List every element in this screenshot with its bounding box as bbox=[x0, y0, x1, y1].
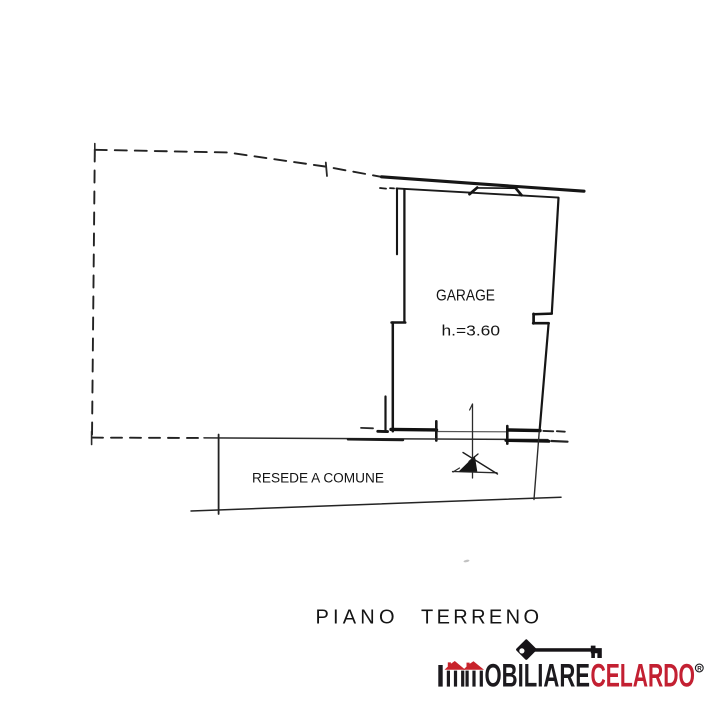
svg-text:CELARDO: CELARDO bbox=[591, 658, 696, 694]
svg-text:RESEDE A COMUNE: RESEDE A COMUNE bbox=[252, 471, 384, 486]
svg-text:R: R bbox=[697, 665, 702, 672]
svg-text:h.=3.60: h.=3.60 bbox=[442, 323, 501, 340]
svg-text:OBILIARE: OBILIARE bbox=[485, 658, 591, 694]
svg-text:GARAGE: GARAGE bbox=[436, 288, 495, 305]
svg-text:TERRENO: TERRENO bbox=[421, 607, 539, 629]
svg-text:PIANO: PIANO bbox=[316, 607, 395, 629]
